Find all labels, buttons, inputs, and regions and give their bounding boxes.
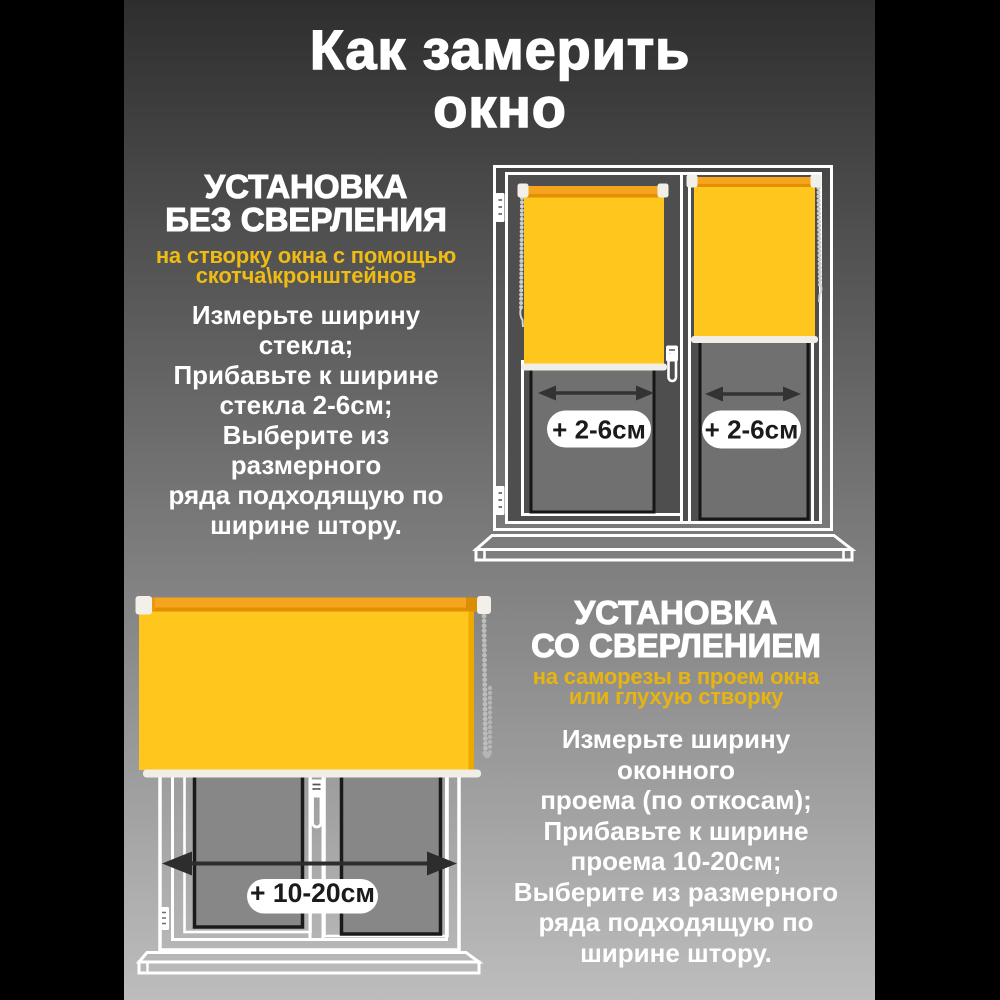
svg-text:+ 2-6см: + 2-6см	[552, 414, 646, 444]
svg-text:+ 2-6см: + 2-6см	[705, 415, 799, 445]
svg-text:+ 10-20см: + 10-20см	[250, 878, 375, 908]
